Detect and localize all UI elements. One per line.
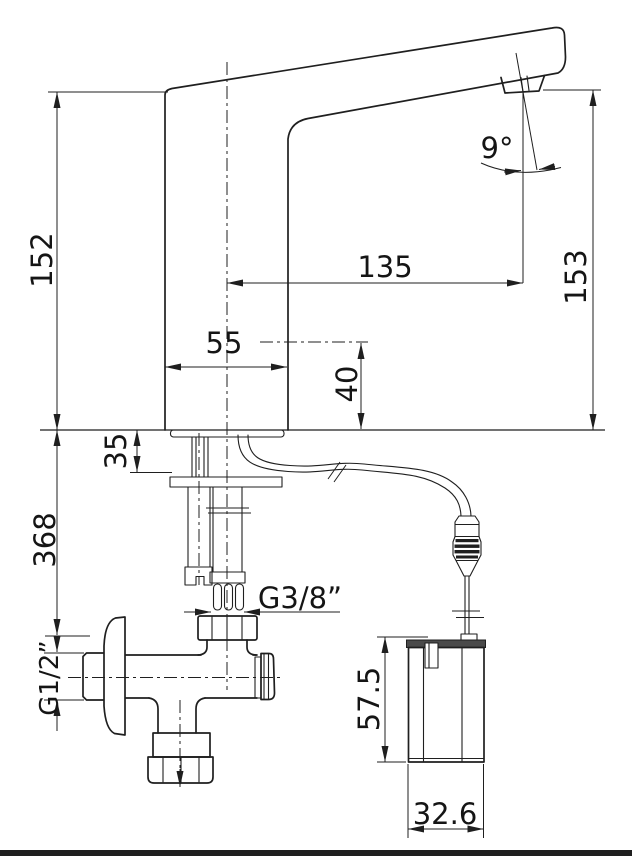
cable-connector <box>452 516 484 634</box>
label-outlet-height: 153 <box>559 249 593 304</box>
centerlines <box>68 53 537 769</box>
label-hose-thread: G3/8” <box>258 581 342 615</box>
technical-drawing-canvas: 152 368 G1/2” 35 55 40 135 153 9° G3/8” … <box>0 0 632 860</box>
valve-right-cap <box>255 654 275 700</box>
bottom-border-bar <box>0 850 632 856</box>
box-body <box>409 648 485 763</box>
mounting-plate <box>170 477 282 487</box>
label-deck-thickness: 35 <box>99 433 133 470</box>
label-spout-height: 152 <box>25 232 59 287</box>
valve-outlet-branch <box>149 698 205 733</box>
wall-spigot <box>83 653 105 700</box>
wire-break-ticks <box>452 611 484 618</box>
label-spray-angle: 9° <box>481 131 514 165</box>
label-sensor-height: 40 <box>330 366 364 403</box>
box-lid <box>407 640 486 648</box>
connector-wire <box>465 576 469 634</box>
box-clip <box>425 643 438 668</box>
braided-hose <box>214 584 244 610</box>
label-body-depth: 55 <box>206 326 243 360</box>
label-box-width: 32.6 <box>413 797 478 831</box>
cable-break-ticks <box>328 462 346 482</box>
wall-escutcheon <box>104 617 125 735</box>
angle-valve <box>83 616 275 783</box>
control-box <box>407 634 486 762</box>
faucet-outline <box>165 27 566 430</box>
outlet-collar <box>153 733 210 757</box>
faucet-body <box>165 27 566 437</box>
label-spout-reach: 135 <box>357 250 412 284</box>
sensor-cable <box>238 435 471 516</box>
faucet-dimension-drawing: 152 368 G1/2” 35 55 40 135 153 9° G3/8” … <box>0 0 632 860</box>
label-box-height: 57.5 <box>352 667 386 732</box>
spray-axis-line <box>516 53 537 170</box>
label-valve-thread: G1/2” <box>35 640 65 715</box>
threaded-shank <box>192 437 208 477</box>
label-under-counter: 368 <box>28 512 62 567</box>
